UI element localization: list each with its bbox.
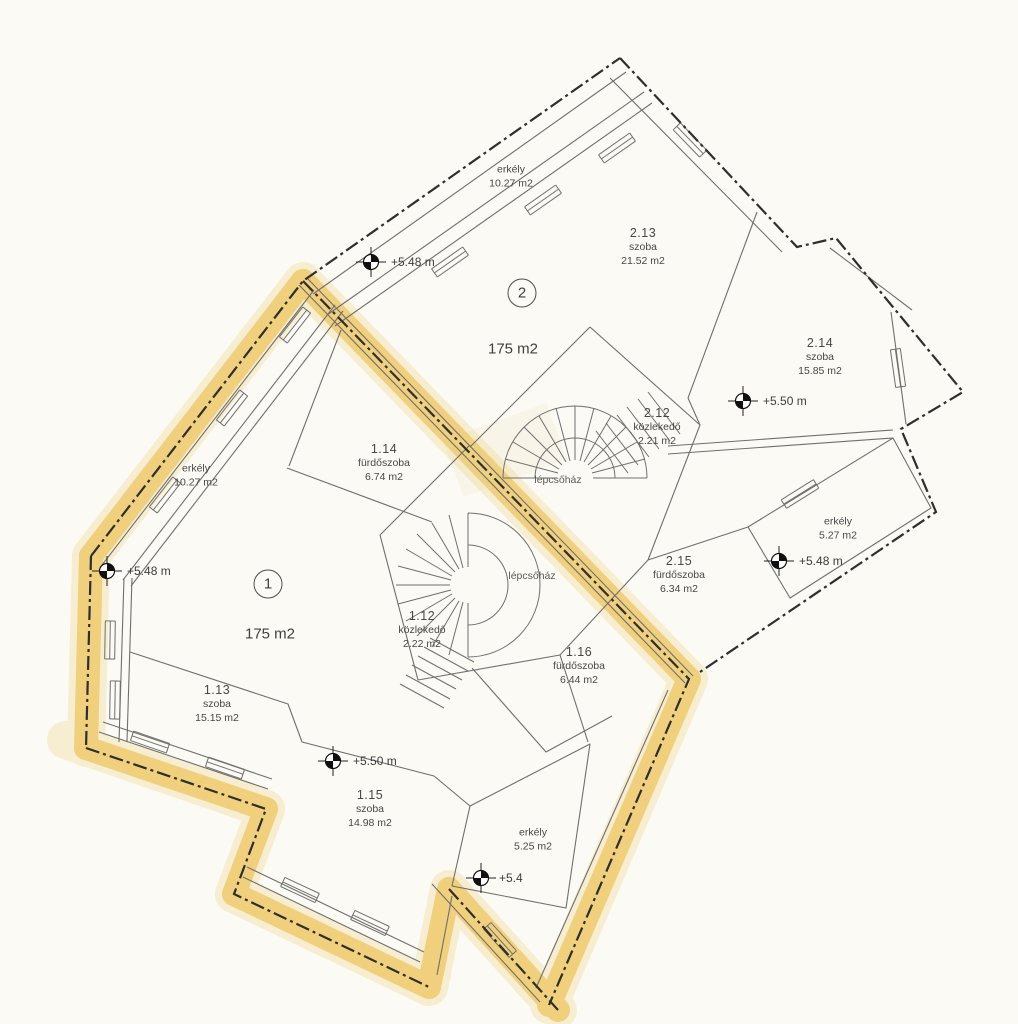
wall-layer: [99, 72, 931, 1002]
balcony-right-label: erkély 5.27 m2: [819, 515, 857, 542]
window-layer: [105, 123, 906, 958]
balcony-bottom-name: erkély: [514, 826, 552, 840]
elevation-214-label: +5.50 m: [763, 394, 807, 408]
apartment-1-number-badge: 1: [254, 570, 283, 599]
apartment-2-area-label: 175 m2: [488, 339, 538, 359]
elevation-top-label: +5.48 m: [391, 255, 435, 269]
room-114-code: 1.14: [358, 441, 410, 457]
room-114-area: 6.74 m2: [358, 471, 410, 485]
room-113-label: 1.13 szoba 15.15 m2: [195, 682, 239, 726]
room-112-label: 1.12 közlekedő 2.22 m2: [398, 608, 445, 652]
room-213-code: 2.13: [621, 225, 665, 241]
room-115-name: szoba: [348, 803, 392, 817]
stairwell-lower-label: lépcsőház: [508, 570, 555, 582]
room-116-area: 6.44 m2: [553, 674, 605, 688]
room-214-code: 2.14: [798, 335, 842, 351]
room-214-area: 15.85 m2: [798, 365, 842, 379]
room-113-code: 1.13: [195, 682, 239, 698]
elevation-left-label: +5.48 m: [127, 564, 171, 578]
balcony-bottom-area: 5.25 m2: [514, 840, 552, 854]
room-212-area: 2.21 m2: [633, 435, 680, 449]
elevation-bottom-label: +5.4: [499, 871, 523, 885]
room-215-label: 2.15 fürdőszoba 6.34 m2: [653, 553, 705, 597]
room-214-label: 2.14 szoba 15.85 m2: [798, 335, 842, 379]
balcony-left-area: 10.27 m2: [174, 476, 218, 490]
balcony-top-area: 10.27 m2: [489, 177, 533, 191]
room-114-name: fürdőszoba: [358, 457, 410, 471]
apartment-1-area-label: 175 m2: [245, 624, 295, 644]
balcony-left-label: erkély 10.27 m2: [174, 462, 218, 489]
room-112-area: 2.22 m2: [398, 638, 445, 652]
room-114-label: 1.14 fürdőszoba 6.74 m2: [358, 441, 410, 485]
room-112-code: 1.12: [398, 608, 445, 624]
balcony-top-name: erkély: [489, 163, 533, 177]
elevation-115-label: +5.50 m: [353, 754, 397, 768]
room-213-area: 21.52 m2: [621, 255, 665, 269]
floor-plan-page: erkély 10.27 m2 +5.48 m 2.13 szoba 21.52…: [0, 0, 1018, 1024]
room-213-label: 2.13 szoba 21.52 m2: [621, 225, 665, 269]
room-212-label: 2.12 közlekedő 2.21 m2: [633, 405, 680, 449]
room-116-code: 1.16: [553, 644, 605, 660]
room-112-name: közlekedő: [398, 624, 445, 638]
room-215-code: 2.15: [653, 553, 705, 569]
room-113-name: szoba: [195, 698, 239, 712]
balcony-right-area: 5.27 m2: [819, 529, 857, 543]
room-115-code: 1.15: [348, 787, 392, 803]
room-212-code: 2.12: [633, 405, 680, 421]
room-212-name: közlekedő: [633, 421, 680, 435]
balcony-left-name: erkély: [174, 462, 218, 476]
balcony-right-name: erkély: [819, 515, 857, 529]
elevation-right-label: +5.48 m: [799, 554, 843, 568]
room-215-name: fürdőszoba: [653, 569, 705, 583]
room-113-area: 15.15 m2: [195, 712, 239, 726]
room-116-label: 1.16 fürdőszoba 6.44 m2: [553, 644, 605, 688]
room-116-name: fürdőszoba: [553, 660, 605, 674]
apartment-2-number-badge: 2: [508, 279, 537, 308]
room-115-label: 1.15 szoba 14.98 m2: [348, 787, 392, 831]
balcony-top-label: erkély 10.27 m2: [489, 163, 533, 190]
room-115-area: 14.98 m2: [348, 817, 392, 831]
room-213-name: szoba: [621, 241, 665, 255]
stairwell-upper-label: lépcsőház: [534, 474, 581, 486]
room-215-area: 6.34 m2: [653, 583, 705, 597]
room-214-name: szoba: [798, 351, 842, 365]
balcony-bottom-label: erkély 5.25 m2: [514, 826, 552, 853]
